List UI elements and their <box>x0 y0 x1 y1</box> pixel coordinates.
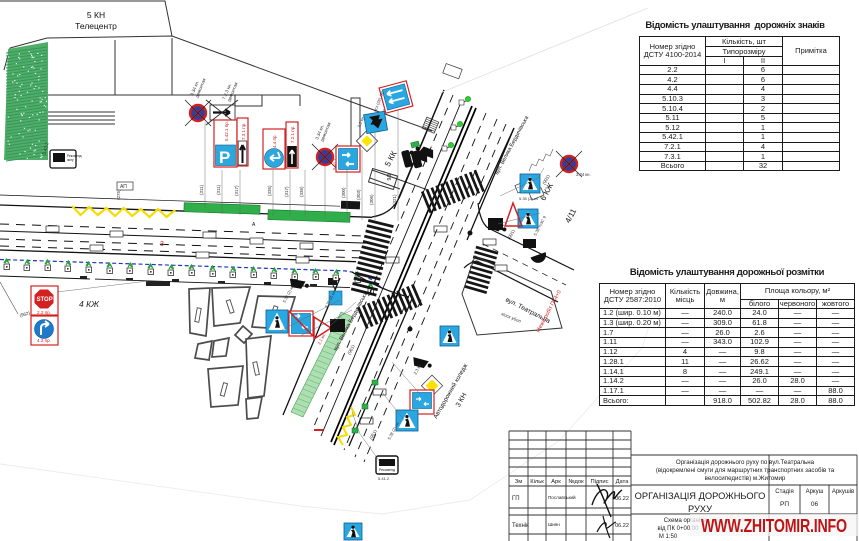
svg-text:Автодорожний коледж: Автодорожний коледж <box>432 363 469 420</box>
svg-text:STOP: STOP <box>37 297 53 303</box>
svg-text:P: P <box>219 148 230 167</box>
svg-text:(306): (306) <box>369 194 374 205</box>
svg-text:3: 3 <box>160 241 164 248</box>
svg-text:Пославський: Пославський <box>548 494 576 500</box>
svg-text:(951): (951) <box>368 428 378 440</box>
svg-text:(317): (317) <box>234 185 239 196</box>
svg-text:5 КН: 5 КН <box>87 10 105 20</box>
svg-text:ОРГАНІЗАЦІЯ ДОРОЖНЬОГО: ОРГАНІЗАЦІЯ ДОРОЖНЬОГО <box>635 491 766 501</box>
svg-text:(311): (311) <box>199 184 204 195</box>
svg-text:Шиян: Шиян <box>548 522 560 527</box>
svg-text:зону: зону <box>67 158 74 162</box>
svg-text:(321): (321) <box>392 194 397 205</box>
svg-text:А: А <box>252 222 256 228</box>
svg-text:4.4 пр.: 4.4 пр. <box>272 134 277 148</box>
svg-text:РУХУ: РУХУ <box>688 504 712 514</box>
svg-text:4.2 пр.: 4.2 пр. <box>37 338 51 343</box>
svg-text:(311): (311) <box>216 184 221 195</box>
svg-text:РП: РП <box>780 501 789 508</box>
svg-text:(317): (317) <box>284 186 289 197</box>
svg-text:(991): (991) <box>506 228 516 240</box>
svg-text:5.41.2: 5.41.2 <box>378 476 390 481</box>
svg-text:5.41.1: 5.41.1 <box>332 158 337 170</box>
svg-text:(300): (300) <box>341 187 346 198</box>
svg-text:АП: АП <box>120 184 127 190</box>
svg-text:Межа робіт ПК4+0: Межа робіт ПК4+0 <box>535 289 562 333</box>
svg-text:06.22: 06.22 <box>615 496 629 502</box>
svg-text:вул. Велика Бердичівська: вул. Велика Бердичівська <box>494 114 531 176</box>
svg-text:06.22: 06.22 <box>615 523 629 529</box>
svg-text:2.2 пр.: 2.2 пр. <box>37 310 51 315</box>
svg-text:Телецентр: Телецентр <box>75 21 117 31</box>
svg-text:ГП: ГП <box>512 496 520 502</box>
svg-text:Стадія: Стадія <box>775 489 793 495</box>
svg-text:№док: №док <box>568 479 584 485</box>
svg-text:Зм: Зм <box>515 479 523 485</box>
svg-text:5.42.1 пр.: 5.42.1 пр. <box>224 121 229 141</box>
svg-text:(відокремлені смуги для маршру: (відокремлені смуги для маршрутних транс… <box>656 467 835 474</box>
svg-text:(335): (335) <box>267 185 272 196</box>
svg-text:кіоск убоп: кіоск убоп <box>501 311 523 324</box>
svg-text:7.3.1 пр.: 7.3.1 пр. <box>241 123 246 140</box>
svg-text:М 1:50: М 1:50 <box>659 534 678 540</box>
svg-text:(962): (962) <box>19 310 31 318</box>
svg-text:06: 06 <box>811 501 819 508</box>
svg-text:велосипедистів) м.Житомир: велосипедистів) м.Житомир <box>705 475 786 482</box>
svg-text:5.35 (2) кн: 5.35 (2) кн <box>519 196 538 201</box>
svg-text:(336): (336) <box>299 186 304 197</box>
svg-text:2.3 кн.: 2.3 кн. <box>412 362 422 375</box>
svg-text:6 КЖ: 6 КЖ <box>538 181 555 202</box>
svg-text:5 КК: 5 КК <box>383 149 399 168</box>
svg-text:Арк: Арк <box>551 479 561 485</box>
svg-text:Кільк: Кільк <box>530 479 544 485</box>
svg-text:(303): (303) <box>356 189 361 200</box>
svg-text:4/11: 4/11 <box>563 207 578 225</box>
svg-text:Підпис: Підпис <box>590 479 608 485</box>
svg-text:(275): (275) <box>116 189 121 200</box>
svg-text:3.34 кн.: 3.34 кн. <box>576 172 591 177</box>
svg-text:7.2.1 пр.: 7.2.1 пр. <box>290 126 295 143</box>
svg-text:Аркуш: Аркуш <box>806 489 824 495</box>
svg-text:Аркушів: Аркушів <box>832 489 854 495</box>
svg-text:Дата: Дата <box>616 479 630 485</box>
svg-text:Організація дорожнього руху по: Організація дорожнього руху по вул.Театр… <box>676 459 815 466</box>
svg-text:3 КН: 3 КН <box>455 392 469 408</box>
svg-text:Рекоменд: Рекоменд <box>379 468 395 472</box>
svg-text:Технік: Технік <box>512 523 529 529</box>
svg-text:4 КЖ: 4 КЖ <box>79 299 100 309</box>
svg-text:9/9: 9/9 <box>387 173 393 180</box>
